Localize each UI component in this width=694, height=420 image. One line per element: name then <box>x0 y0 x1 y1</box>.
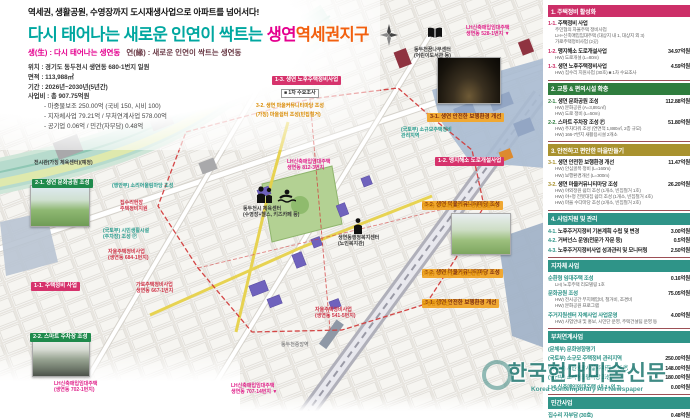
item-title: 생연 문화공원 조성 <box>558 99 599 105</box>
item-no: 4-1. <box>548 229 557 235</box>
map-label-mois-soundyard: (행안부) 소리어울림마당 조성 <box>112 183 173 189</box>
item-amount: 250.00억원 <box>665 354 690 362</box>
item-sub: HW) 집수리 지원사업 (30호) ■ 1차 수요조사 <box>548 70 690 76</box>
map-label-3-1-walk-b-sub: 보행환경개선 <box>422 301 450 307</box>
item-title: 노후주거지정비사업 성과관리 및 모니터링 <box>558 248 648 254</box>
title-orange-part: 역세권지구 <box>296 26 369 44</box>
map-label-lh-702: LH신축매입임대주택 (생연동 702-1번지) <box>54 381 97 394</box>
map-label-exhibit-hall: 전시관(가칭 체육센터)(예정) <box>34 160 93 166</box>
item-amount: 0.00억원 <box>671 383 690 391</box>
section-divider <box>548 80 690 81</box>
item-amount: 3.00억원 <box>671 227 690 235</box>
section-housing-header: 1. 주택정비 활성화 <box>548 5 690 17</box>
section-safe-village-header: 3. 안전하고 편안한 마을만들기 <box>548 144 690 156</box>
list-item: (국토부) 시민생활시설 주차장 조성 Ⓟ148.00억원 <box>548 364 690 372</box>
map-label-3-1-walk: 3-1. 생연 안전한 보행환경 개선 <box>427 113 504 122</box>
list-item: 집수리 자부담 (30호)0.48억원 <box>548 411 690 419</box>
map-label-community-center: 생연동행정복지센터 (노인복지관) <box>338 235 379 248</box>
section-transport: 2. 교통 & 편의시설 확충 2-1. 생연 문화공원 조성112.88억원 … <box>548 83 690 143</box>
map-label-1-1-housing: 1-1. 주택정비 사업 <box>31 282 80 291</box>
item-amount: 34.97억원 <box>668 47 690 55</box>
map-label-2-1-park: 2-1. 생연 문화공원 조성 <box>32 179 93 188</box>
info-budget-detail-2: - 지자체사업 79.21억 / 부처연계사업 578.00억 <box>28 112 368 122</box>
section-local-gov-header: 지자체 사업 <box>548 260 690 272</box>
item-amount: 51.80억원 <box>668 118 690 126</box>
list-item: (문체부) 문화영향평가 <box>548 345 690 353</box>
map-label-3-2-yard-b-sub: (야외) 전봇대집 쉼터 조성(빈집철거) <box>422 203 497 209</box>
item-title: (국토부) 소규모 주택정비 관리지역 <box>548 354 622 362</box>
item-amount: 11.47억원 <box>668 158 690 166</box>
section-safe-village: 3. 안전하고 편안한 마을만들기 3-1. 생연 안전한 보행환경 개선11.… <box>548 144 690 210</box>
item-no: 2-1. <box>548 99 557 105</box>
item-no: 4-2. <box>548 238 557 244</box>
section-housing: 1. 주택정비 활성화 1-1. 주택정비 사업 주민협의 자율주택 정비사업 … <box>548 5 690 81</box>
section-divider <box>548 210 690 211</box>
info-budget-detail-1: - 마중물보조 250.00억 (국비 150, 시비 100) <box>28 102 368 112</box>
render-community-yard <box>451 213 511 255</box>
map-label-kids-library: 동두천꿈나무센터 (어린이도서관 등) <box>414 47 451 60</box>
item-sub: HW) 마을 수다마당 조성 (2개소, 빈집철거 2호) <box>548 200 690 206</box>
item-no: 4-3. <box>548 248 557 254</box>
map-label-molit-parking: (국토부) 시민생활시설 (주차장) 조성 Ⓟ <box>103 228 149 241</box>
info-location: 위치 : 경기도 동두천시 생연동 680-1번지 일원 <box>28 63 368 73</box>
section-divider <box>548 328 690 329</box>
item-title: 노후주거지정비 기본계획 수립 및 변경 <box>558 229 639 235</box>
list-item: 4-2. 거버넌스 운영(전문가 자문 등)0.5억원 <box>548 236 690 244</box>
section-ministry-linked: 부처연계사업 (문체부) 문화영향평가 (국토부) 소규모 주택정비 관리지역2… <box>548 331 690 395</box>
list-item: 3-2. 생연 마을커뮤니티마당 조성26.20억원 <box>548 180 690 188</box>
item-title: (문체부) 문화영향평가 <box>548 345 595 353</box>
item-amount: 4.59억원 <box>671 62 690 70</box>
item-sub: HW) 도로개설 (L=80m) <box>548 55 690 61</box>
slogan: 역세권, 생활공원, 수영장까지 도시재생사업으로 아파트를 넘어서다! <box>28 6 368 18</box>
info-budget: 사업비 : 총 907.75억원 <box>28 92 368 102</box>
section-divider <box>548 394 690 395</box>
page-title: 다시 태어나는 새로운 인연이 싹트는 생연역세권지구 <box>28 21 368 45</box>
list-item: 순환형 임대주택 조성0.16억원 <box>548 274 690 282</box>
item-title: 주거지원센터 자체사업 사업운영 <box>548 311 617 319</box>
render-culture-park <box>30 185 90 227</box>
item-amount: 75.05억원 <box>668 289 690 297</box>
section-support: 4. 사업지원 및 관리 4-1. 노후주거지정비 기본계획 수립 및 변경3.… <box>548 213 690 258</box>
map-label-lh-528: LH신축매입임대주택 생연동 528-1번지 ▼ <box>466 25 510 38</box>
section-ministry-linked-header: 부처연계사업 <box>548 331 690 343</box>
section-private: 민간사업 집수리 자부담 (30호)0.48억원 <box>548 397 690 420</box>
subtitle-saeng: 생(生) : 다시 태어나는 생연동 <box>28 48 120 57</box>
item-no: 1-2. <box>548 49 557 55</box>
infographic-canvas: 역세권, 생활공원, 수영장까지 도시재생사업으로 아파트를 넘어서다! 다시 … <box>0 0 694 420</box>
project-info: 위치 : 경기도 동두천시 생연동 680-1번지 일원 면적 : 113,98… <box>28 63 368 131</box>
item-sub: HW) 166-7번지 새활용시설 2개소 <box>548 132 690 138</box>
info-period: 기간 : 2026년~2030년(5년간) <box>28 83 368 93</box>
person-icon <box>352 218 364 234</box>
map-label-station: 동두천중앙역 <box>281 342 309 348</box>
item-amount: 112.88억원 <box>665 97 690 105</box>
map-label-molit-smallscale: (국토부) 소규모주택정비 관리지역 <box>401 127 452 140</box>
book-icon <box>427 27 443 39</box>
map-label-lh-812: LH신축매입임대주택 생연동 812-3번지 <box>287 159 330 172</box>
photo-night-alley <box>437 57 501 104</box>
section-divider <box>548 257 690 258</box>
title-teal-part: 다시 태어나는 새로운 인연이 싹트는 <box>28 26 267 44</box>
subtitle: 생(生) : 다시 태어나는 생연동연(緣) : 새로운 인연이 싹트는 생연동 <box>28 47 368 58</box>
info-area: 면적 : 113,988㎡ <box>28 73 368 83</box>
item-sub: HW) 문화공원 프로그램 <box>548 303 690 309</box>
project-list-panel: 1. 주택정비 활성화 1-1. 주택정비 사업 주민협의 자율주택 정비사업 … <box>543 0 694 420</box>
item-amount: 0.16억원 <box>671 274 690 282</box>
map-label-repair-site: 집수리현장 주택정비지원 <box>120 200 148 213</box>
section-transport-header: 2. 교통 & 편의시설 확충 <box>548 83 690 95</box>
item-title: LH) 신축매입임대주택 (내 1+외 3) <box>548 383 621 391</box>
list-item: (행안부) 소리어울림마당 조성180.00억원 <box>548 373 690 381</box>
map-label-1-2-road: 1-2. 맹지해소 도로개설사업 <box>435 157 504 166</box>
list-item: 주거지원센터 자체사업 사업운영4.00억원 <box>548 311 690 319</box>
family-and-swimmer-icon <box>256 186 296 204</box>
item-title: 집수리 자부담 (30호) <box>548 411 593 419</box>
map-label-lh-707: LH신축매입임대주택 생연동 707-14번지 ▼ <box>231 383 277 396</box>
item-amount: 148.00억원 <box>665 364 690 372</box>
item-sub: HW) 보행환경개선 (L=300m) <box>548 173 690 179</box>
item-sub: HW) 도로 정비 (L=50m) <box>548 111 690 117</box>
item-sub: 가로주택정비사업 (2곳) <box>548 39 690 45</box>
list-item: (국토부) 소규모 주택정비 관리지역250.00억원 <box>548 354 690 362</box>
item-amount: 0.5억원 <box>674 236 690 244</box>
section-private-header: 민간사업 <box>548 397 690 409</box>
item-amount: 180.00억원 <box>665 373 690 381</box>
list-item: 1-3. 생연 노후주택정비사업4.59억원 <box>548 62 690 70</box>
list-item: 4-3. 노후주거지정비사업 성과관리 및 모니터링2.50억원 <box>548 246 690 254</box>
list-item: 1-1. 주택정비 사업 <box>548 19 690 27</box>
section-local-gov: 지자체 사업 순환형 임대주택 조성0.16억원 LH) 노후주택 리모델링 1… <box>548 260 690 329</box>
item-amount: 26.20억원 <box>668 180 690 188</box>
info-budget-detail-3: - 공기업 0.06억 / 민간(자부담) 0.48억 <box>28 122 368 132</box>
item-title: 문화공원 조성 <box>548 289 578 297</box>
list-item: 문화공원 조성75.05억원 <box>548 289 690 297</box>
map-label-sports-center: 동두천시 체육센터 (수영장+헬스, 키즈카페 등) <box>243 206 299 219</box>
list-item: LH) 신축매입임대주택 (내 1+외 3)0.00억원 <box>548 383 690 391</box>
item-amount: 0.48억원 <box>671 411 690 419</box>
item-title: 순환형 임대주택 조성 <box>548 274 593 282</box>
compass-icon <box>380 24 398 46</box>
item-amount: 4.00억원 <box>671 311 690 319</box>
list-item: 2-2. 스마트 주차장 조성 Ⓟ51.80억원 <box>548 118 690 126</box>
item-title: 맹지해소 도로개설사업 <box>558 49 607 55</box>
map-label-self-housing-684: 자율주택정비사업 (생연동 684-1번지) <box>108 249 149 262</box>
header: 역세권, 생활공원, 수영장까지 도시재생사업으로 아파트를 넘어서다! 다시 … <box>28 6 368 131</box>
title-pink-part: 생연 <box>267 26 296 44</box>
item-title: (행안부) 소리어울림마당 조성 <box>548 373 611 381</box>
section-divider <box>548 141 690 142</box>
item-sub: LH) 노후주택 리모델링 1호 <box>548 282 690 288</box>
map-label-street-housing-667: 가로주택정비사업 생연동 667-1번지 <box>136 282 173 295</box>
section-support-header: 4. 사업지원 및 관리 <box>548 213 690 225</box>
list-item: 3-1. 생연 안전한 보행환경 개선11.47억원 <box>548 158 690 166</box>
item-title: (국토부) 시민생활시설 주차장 조성 Ⓟ <box>548 364 628 372</box>
map-label-self-housing-541: 자율주택정비사업 (생연동 541-5번지) <box>315 307 356 320</box>
list-item: 4-1. 노후주거지정비 기본계획 수립 및 변경3.00억원 <box>548 227 690 235</box>
item-title: 거버넌스 운영(전문가 자문 등) <box>558 238 622 244</box>
map-label-3-2-yard-c-sub: (마을) 수다마당 조성(빈집철거) <box>422 271 487 277</box>
list-item: 1-2. 맹지해소 도로개설사업34.97억원 <box>548 47 690 55</box>
item-amount: 2.50억원 <box>671 246 690 254</box>
list-item: 2-1. 생연 문화공원 조성112.88억원 <box>548 97 690 105</box>
subtitle-yeon: 연(緣) : 새로운 인연이 싹트는 생연동 <box>126 48 241 57</box>
map-label-2-2-parking: 2-2. 스마트 주차장 조성 <box>30 333 91 342</box>
item-sub: HW) 사업안내 및 홍보, 시민단 운영, 주택건설팀 운영 등 <box>548 319 690 325</box>
